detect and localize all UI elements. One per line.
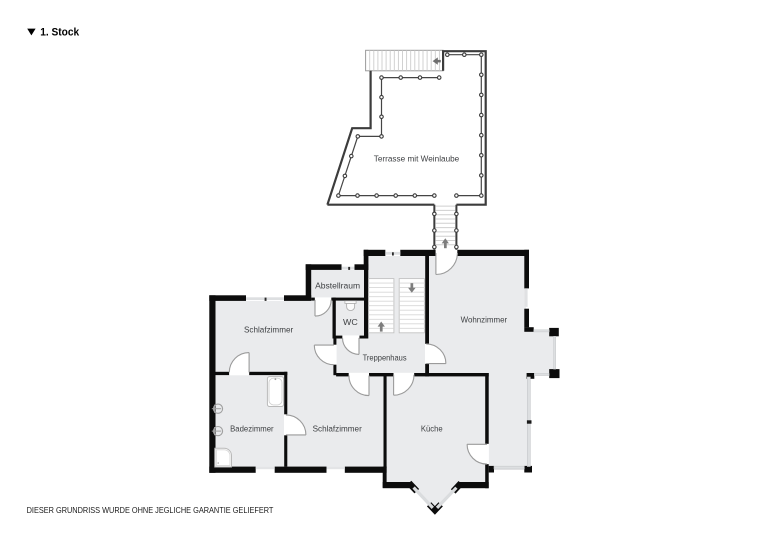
svg-text:WC: WC — [343, 317, 358, 327]
svg-text:1. Stock: 1. Stock — [40, 27, 80, 39]
svg-text:DIESER GRUNDRISS WURDE OHNE JE: DIESER GRUNDRISS WURDE OHNE JEGLICHE GAR… — [27, 506, 274, 515]
svg-text:Terrasse mit Weinlaube: Terrasse mit Weinlaube — [374, 153, 460, 163]
svg-text:Abstellraum: Abstellraum — [315, 281, 360, 291]
svg-text:Küche: Küche — [421, 424, 443, 434]
svg-text:Schlafzimmer: Schlafzimmer — [244, 325, 293, 335]
svg-text:Treppenhaus: Treppenhaus — [363, 352, 407, 362]
svg-text:Badezimmer: Badezimmer — [230, 424, 274, 434]
svg-text:Schlafzimmer: Schlafzimmer — [313, 424, 362, 434]
svg-text:Wohnzimmer: Wohnzimmer — [461, 314, 508, 324]
